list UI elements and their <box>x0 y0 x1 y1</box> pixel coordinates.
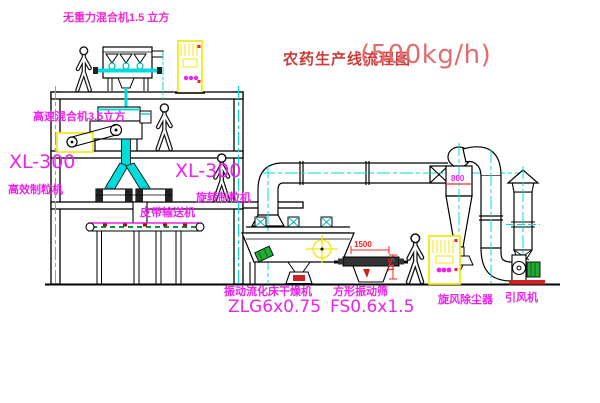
granulator-right-model-label: XL-300 <box>175 162 241 181</box>
granulators-drawing <box>96 139 172 202</box>
person-figure-2 <box>158 104 171 149</box>
control-cabinet-2 <box>429 236 460 284</box>
sieve-height-dimension: 541 <box>386 258 394 271</box>
granulator-left-name-label: 高效制粒机 <box>8 185 63 196</box>
weightless-mixer-label: 无重力混合机1.5 立方 <box>63 13 169 24</box>
cyclone-diameter-dimension: 800 <box>451 175 464 183</box>
sieve-length-dimension: 1500 <box>354 241 372 249</box>
high-speed-mixer-label: 高速混合机3.5立方 <box>33 112 125 123</box>
page-title-capacity: (500kg/h) <box>360 42 491 68</box>
belt-conveyor-label: 皮带输送机 <box>140 208 195 219</box>
sieve-model-label: FS0.6x1.5 <box>330 299 414 316</box>
process-flow-diagram: 无重力混合机1.5 立方 农药生产线流程图 (500kg/h) 高速混合机3.5… <box>0 0 600 403</box>
cyclone-label: 旋风除尘器 <box>438 295 493 306</box>
fluid-bed-dryer-drawing <box>242 217 354 284</box>
control-cabinet-1 <box>175 41 205 93</box>
granulator-left-model-label: XL-300 <box>9 153 75 172</box>
person-figure-4 <box>408 234 422 282</box>
induced-draft-fan-drawing <box>509 255 545 285</box>
person-figure-1 <box>77 47 89 90</box>
granulator-right-name-label: 旋转制粒机 <box>196 193 251 204</box>
fan-label: 引风机 <box>505 293 538 304</box>
dryer-model-label: ZLG6x0.75 <box>228 299 321 316</box>
